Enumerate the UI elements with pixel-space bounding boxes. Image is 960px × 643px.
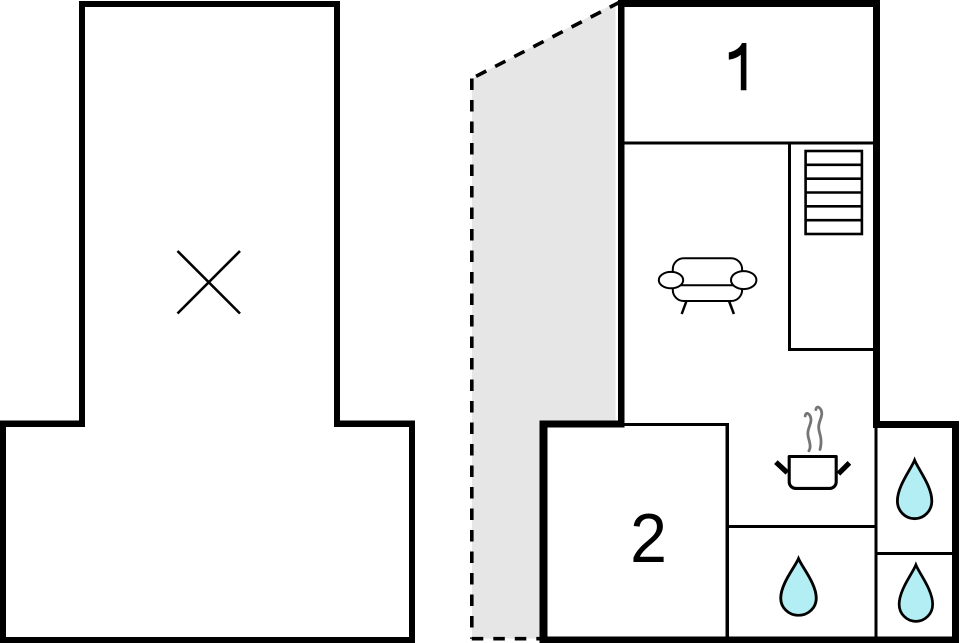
svg-text:2: 2 — [630, 499, 667, 577]
